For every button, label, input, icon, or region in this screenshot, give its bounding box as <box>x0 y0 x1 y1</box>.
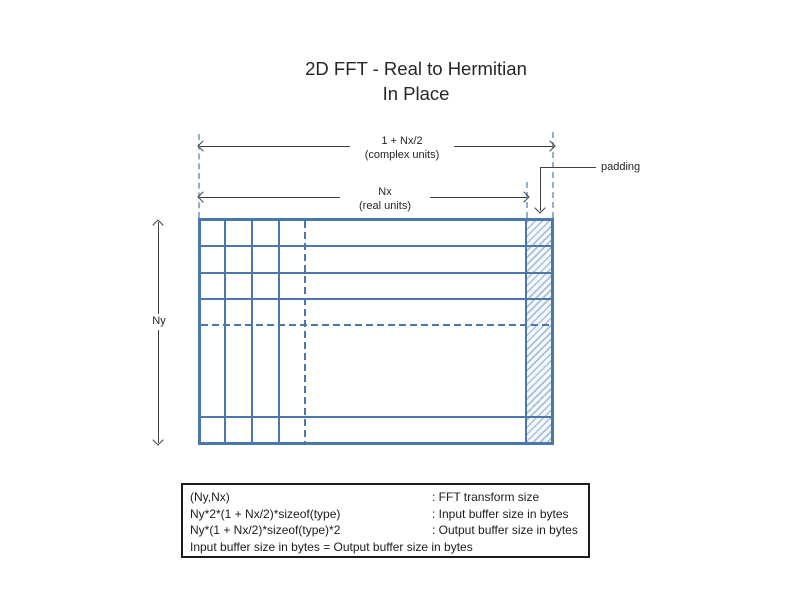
legend-box: (Ny,Nx) : FFT transform size Ny*2*(1 + N… <box>181 483 590 558</box>
grid-vline-3 <box>278 221 280 442</box>
arrowhead-up-icon <box>153 219 164 230</box>
height-arrow <box>158 222 159 443</box>
grid-vline-hatch-border <box>525 221 527 442</box>
complex-width-units: (complex units) <box>354 149 450 163</box>
grid-hline-1 <box>201 245 551 247</box>
title-line-1: 2D FFT - Real to Hermitian <box>16 56 800 81</box>
title-line-2: In Place <box>16 81 800 106</box>
real-width-label: Nx (real units) <box>340 185 430 214</box>
height-label: Ny <box>143 314 175 330</box>
legend-formula: Ny*2*(1 + Nx/2)*sizeof(type) <box>190 507 340 521</box>
grid-hline-dashed <box>201 324 551 326</box>
legend-row: (Ny,Nx) : FFT transform size <box>183 489 588 506</box>
padding-pointer-horizontal <box>540 167 596 168</box>
grid-vline-1 <box>224 221 226 442</box>
legend-description: : Input buffer size in bytes <box>432 506 569 523</box>
legend-row: Ny*(1 + Nx/2)*sizeof(type)*2 : Output bu… <box>183 522 588 539</box>
legend-description: : Output buffer size in bytes <box>432 522 578 539</box>
real-width-units: (real units) <box>344 200 426 214</box>
grid-vline-dashed <box>304 221 306 442</box>
legend-note: Input buffer size in bytes = Output buff… <box>183 539 588 556</box>
grid-hline-2 <box>201 272 551 274</box>
grid-hline-3 <box>201 298 551 300</box>
diagram-page: 2D FFT - Real to Hermitian In Place 1 + … <box>0 0 800 600</box>
grid-vline-2 <box>251 221 253 442</box>
legend-formula: Ny*(1 + Nx/2)*sizeof(type)*2 <box>190 523 340 537</box>
arrowhead-down-icon <box>153 434 164 445</box>
legend-description: : FFT transform size <box>432 489 539 506</box>
legend-row: Ny*2*(1 + Nx/2)*sizeof(type) : Input buf… <box>183 506 588 523</box>
arrowhead-down-icon <box>535 202 546 213</box>
padding-hatch-column <box>527 221 551 442</box>
grid-hline-bottom-row <box>201 416 551 418</box>
page-title: 2D FFT - Real to Hermitian In Place <box>16 56 800 106</box>
memory-layout-grid <box>198 218 554 445</box>
complex-width-value: 1 + Nx/2 <box>354 135 450 149</box>
padding-pointer-vertical <box>540 167 541 211</box>
padding-label: padding <box>601 161 640 174</box>
legend-formula: (Ny,Nx) <box>190 490 230 504</box>
real-width-value: Nx <box>344 186 426 200</box>
height-value: Ny <box>147 315 171 329</box>
complex-width-label: 1 + Nx/2 (complex units) <box>350 134 454 163</box>
